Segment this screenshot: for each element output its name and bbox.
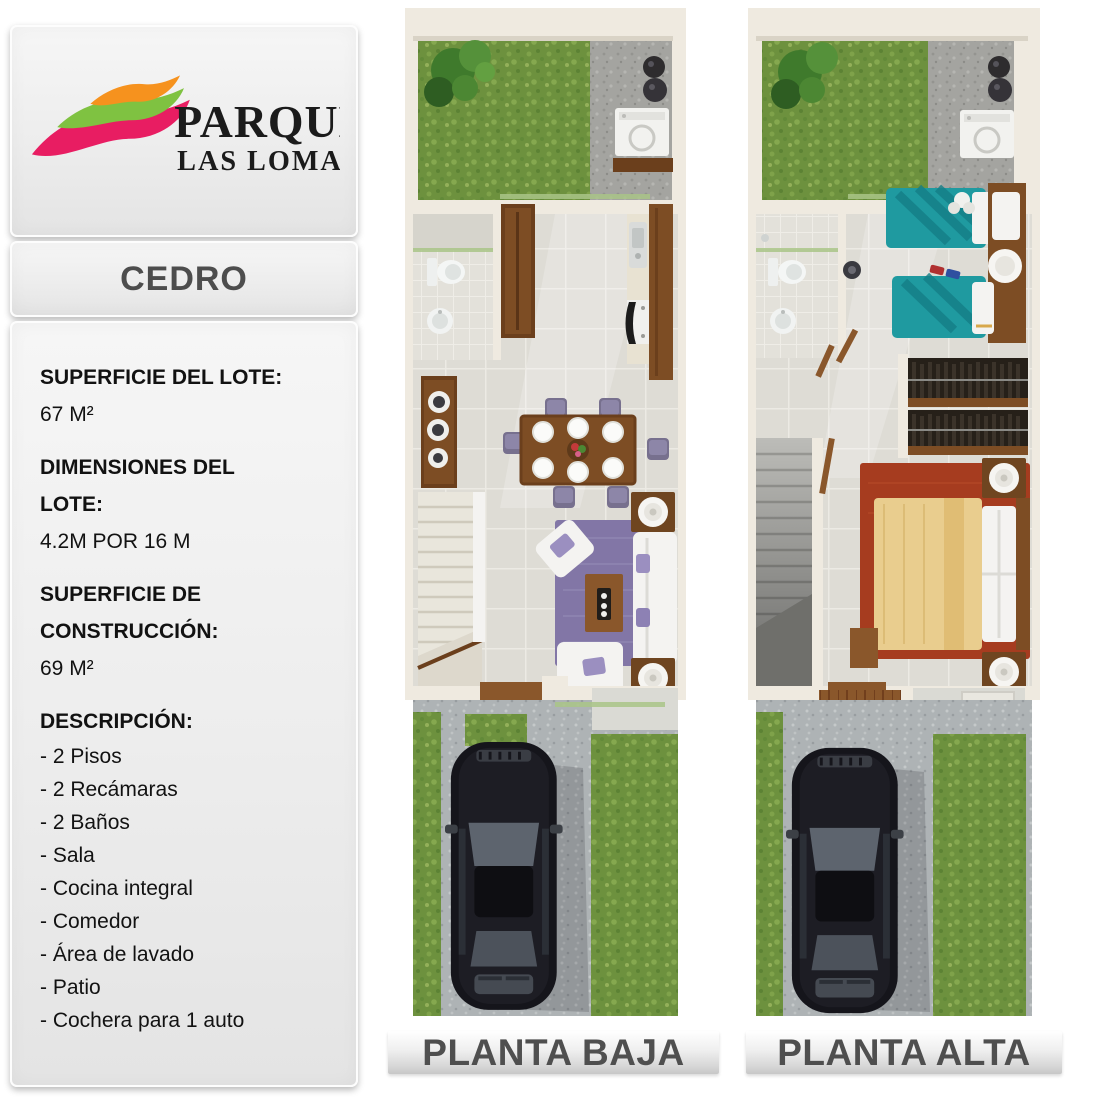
description-item: - Cochera para 1 auto <box>40 1004 292 1037</box>
sofa <box>633 532 677 664</box>
spec-label: SUPERFICIE DE CONSTRUCCIÓN: <box>40 576 292 650</box>
shower-head <box>761 234 769 242</box>
kitchen-sink <box>629 222 647 268</box>
spec-value: 69 M² <box>40 650 292 687</box>
staircase <box>418 492 485 694</box>
shower <box>413 214 493 250</box>
details-panel: SUPERFICIE DEL LOTE: 67 M² DIMENSIONES D… <box>10 321 358 1087</box>
spec-lot-surface: SUPERFICIE DEL LOTE: 67 M² <box>40 359 292 433</box>
closets <box>898 354 1028 458</box>
description-item: - Comedor <box>40 905 292 938</box>
planta-baja-floorplan <box>405 8 686 1022</box>
headboard <box>1016 498 1030 650</box>
car <box>445 742 563 1010</box>
description-item: - 2 Recámaras <box>40 773 292 806</box>
patio-garden <box>418 40 673 200</box>
bathroom <box>756 214 858 363</box>
spec-construction-surface: SUPERFICIE DE CONSTRUCCIÓN: 69 M² <box>40 576 292 687</box>
lawn-left <box>756 712 783 1016</box>
master-bedroom <box>850 458 1030 692</box>
plan-label-planta-alta: PLANTA ALTA <box>746 1031 1062 1074</box>
description-title: DESCRIPCIÓN: <box>40 703 292 740</box>
bathroom <box>413 214 501 360</box>
description-item: - 2 Pisos <box>40 740 292 773</box>
brand-name-line2: LAS LOMAS <box>177 146 340 177</box>
window-glass <box>500 194 650 199</box>
description-item: - 2 Baños <box>40 806 292 839</box>
bench <box>850 628 878 668</box>
pedestal-sink <box>427 308 453 334</box>
model-name: CEDRO <box>120 260 248 299</box>
description-item: - Área de lavado <box>40 938 292 971</box>
stove <box>626 300 650 344</box>
kitchen-cabinets <box>649 204 673 380</box>
front-door <box>480 682 542 700</box>
closet <box>908 410 1028 455</box>
pantry-cabinet <box>501 204 535 338</box>
brand-logo: PARQUE LAS LOMAS <box>28 71 340 191</box>
spec-label: DIMENSIONES DEL LOTE: <box>40 449 292 523</box>
description-item: - Patio <box>40 971 292 1004</box>
single-bed <box>886 188 994 248</box>
dining-chair <box>607 486 629 508</box>
washing-machine <box>960 110 1014 158</box>
model-name-panel: CEDRO <box>10 241 358 317</box>
entry-walkway <box>592 688 678 730</box>
driveway <box>756 700 1032 1016</box>
laundry-counter <box>613 158 673 172</box>
double-bed <box>874 498 1030 650</box>
flyer: PARQUE LAS LOMAS CEDRO SUPERFICIE DEL LO… <box>0 0 1093 1100</box>
description-item: - Cocina integral <box>40 872 292 905</box>
patio-garden <box>762 41 1014 200</box>
stair-wall <box>812 438 823 694</box>
stair-railing-wall <box>473 492 485 642</box>
single-bed <box>892 276 994 338</box>
planta-alta-floorplan <box>748 8 1040 1022</box>
spec-lot-dimensions: DIMENSIONES DEL LOTE: 4.2M POR 16 M <box>40 449 292 560</box>
logo-panel: PARQUE LAS LOMAS <box>10 25 358 237</box>
dining-chair <box>647 438 669 460</box>
driveway <box>413 688 678 1016</box>
plan-label-planta-baja: PLANTA BAJA <box>388 1031 719 1074</box>
lawn-right <box>591 734 678 1016</box>
side-table-lamp <box>631 492 675 532</box>
pedestal-sink <box>770 308 796 334</box>
nightstand-lamp <box>982 458 1026 498</box>
lawn-right <box>933 734 1026 1016</box>
spec-value: 4.2M POR 16 M <box>40 523 292 560</box>
car <box>786 748 904 1013</box>
dining-chair <box>553 486 575 508</box>
spec-value: 67 M² <box>40 396 292 433</box>
description-item: - Sala <box>40 839 292 872</box>
console-table <box>421 376 457 488</box>
washing-machine <box>615 108 669 156</box>
lawn-patch <box>465 714 527 746</box>
kitchen <box>626 204 674 380</box>
coffee-table <box>585 574 623 632</box>
brand-name-line1: PARQUE <box>174 96 340 147</box>
spec-label: SUPERFICIE DEL LOTE: <box>40 359 292 396</box>
closet <box>908 358 1028 407</box>
lawn-left <box>413 712 441 1016</box>
info-sidebar: PARQUE LAS LOMAS CEDRO SUPERFICIE DEL LO… <box>10 25 358 1087</box>
